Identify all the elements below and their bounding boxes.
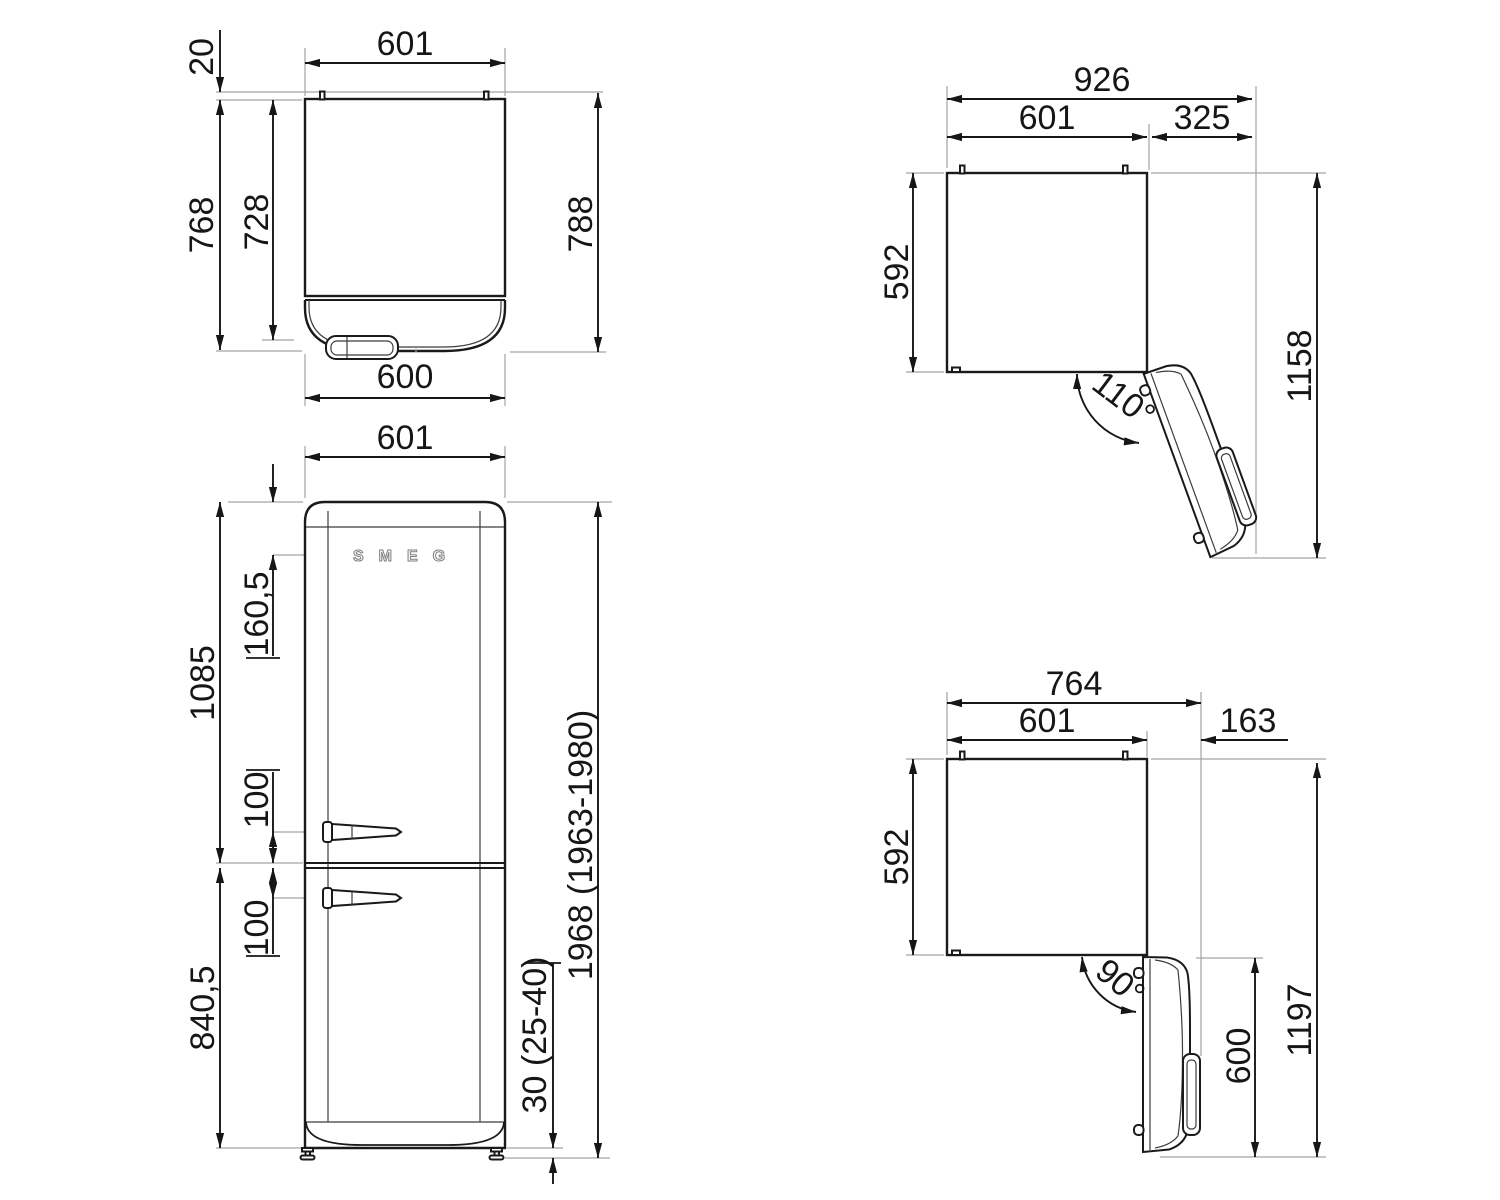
dim-total-depth: 788 — [562, 196, 600, 253]
dim-163-protrusion: 163 — [1220, 702, 1277, 740]
open90-hinge-pin-right — [1123, 752, 1128, 760]
dim-total-height: 1968 (1963-1980) — [562, 710, 600, 980]
dim-feet-height: 30 (25-40) — [516, 957, 554, 1114]
dim-lower-handle-offset: 100 — [238, 900, 276, 957]
door-open-110-view: 110° 926 601 325 592 1158 — [878, 61, 1326, 560]
dim-1197-total-depth: 1197 — [1281, 983, 1319, 1056]
dim-logo-offset: 160,5 — [238, 571, 276, 656]
open110-body — [947, 173, 1147, 372]
open110-hinge-pin-left — [960, 166, 965, 174]
dim-door-width: 600 — [377, 358, 434, 396]
dim-upper-handle-offset: 100 — [238, 772, 276, 829]
dim-lower-section: 840,5 — [184, 965, 222, 1050]
dim-926-total-width: 926 — [1074, 61, 1131, 99]
dim-592-open90: 592 — [878, 829, 916, 886]
dim-764-total-width: 764 — [1046, 665, 1103, 703]
hinge-pin-right — [484, 92, 489, 100]
dim-325-protrusion: 325 — [1174, 99, 1231, 137]
door-open-90-view: 90° 764 601 163 592 600 1197 — [878, 665, 1326, 1157]
open-door-110 — [1135, 354, 1264, 560]
right-foot — [490, 1148, 504, 1160]
dim-1158-total-depth: 1158 — [1281, 329, 1319, 402]
dim-601-open90: 601 — [1019, 702, 1076, 740]
dim-upper-section: 1085 — [184, 645, 222, 721]
open110-foot-mark — [952, 368, 960, 373]
dim-600-door-length: 600 — [1220, 1028, 1258, 1085]
dim-front-width: 601 — [377, 419, 434, 457]
dim-592-open110: 592 — [878, 244, 916, 301]
open110-hinge-pin-right — [1123, 166, 1128, 174]
dim-rear-gap: 20 — [183, 38, 221, 76]
open90-body — [947, 759, 1147, 955]
open90-foot-mark — [952, 951, 960, 956]
left-foot — [301, 1148, 315, 1160]
smeg-fridge-dimension-diagram: 601 20 768 728 788 600 SMEG — [0, 0, 1500, 1200]
dim-601-open110: 601 — [1019, 99, 1076, 137]
dim-body-depth: 728 — [238, 194, 276, 251]
hinge-pin-left — [320, 92, 325, 100]
top-view-body — [305, 99, 505, 296]
dim-depth-no-door: 768 — [183, 197, 221, 254]
dim-top-width: 601 — [377, 25, 434, 63]
top-view: 601 20 768 728 788 600 — [183, 25, 606, 406]
front-view: SMEG 601 160,5 1085 — [184, 419, 612, 1184]
smeg-logo: SMEG — [353, 548, 460, 565]
dimension-drawing-canvas: 601 20 768 728 788 600 SMEG — [0, 0, 1500, 1200]
open90-hinge-pin-left — [960, 752, 965, 760]
